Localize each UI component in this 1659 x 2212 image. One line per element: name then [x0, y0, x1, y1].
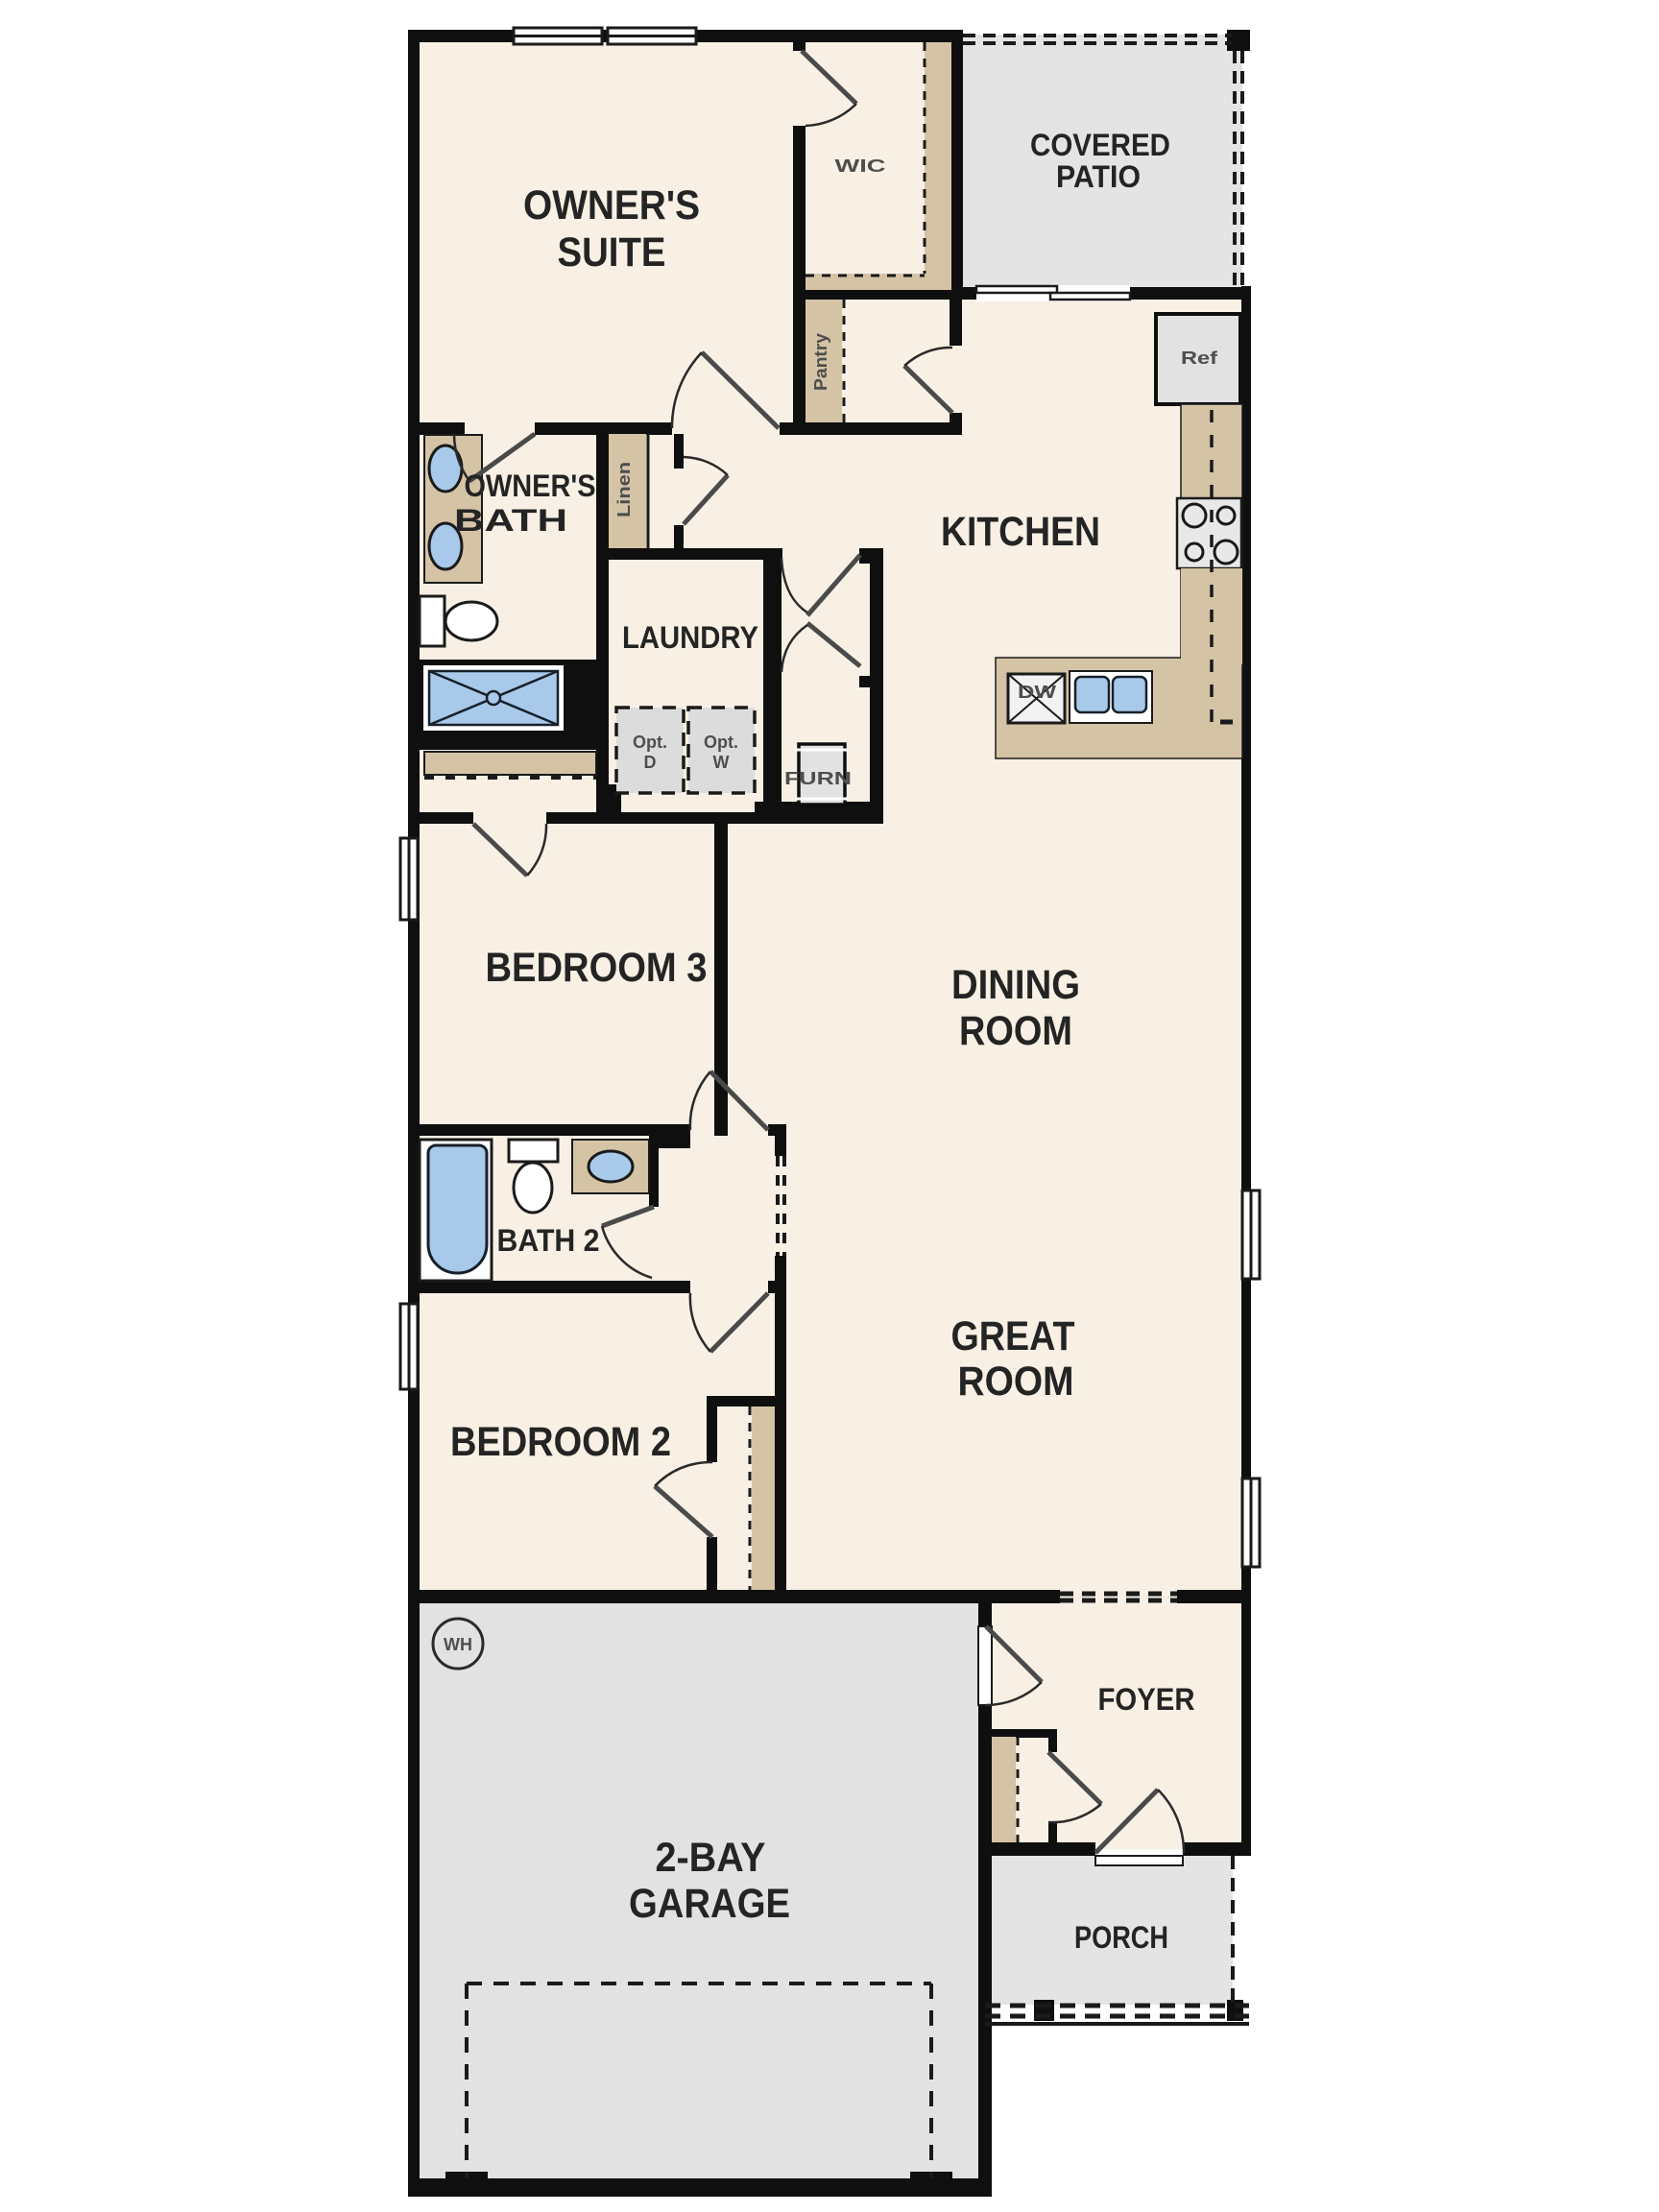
svg-text:KITCHEN: KITCHEN	[941, 509, 1100, 555]
svg-text:Ref: Ref	[1181, 349, 1218, 368]
svg-text:BATH: BATH	[454, 503, 567, 538]
svg-text:PORCH: PORCH	[1074, 1920, 1168, 1955]
svg-text:ROOM: ROOM	[958, 1358, 1074, 1405]
svg-text:Linen: Linen	[614, 462, 634, 517]
svg-text:WH: WH	[444, 1635, 472, 1654]
svg-text:DW: DW	[1018, 683, 1056, 702]
svg-text:Pantry: Pantry	[811, 333, 830, 391]
svg-text:FOYER: FOYER	[1098, 1682, 1195, 1717]
svg-text:ROOM: ROOM	[959, 1008, 1072, 1054]
svg-text:BEDROOM 3: BEDROOM 3	[486, 945, 708, 991]
svg-text:Opt.: Opt.	[704, 733, 738, 752]
svg-text:GREAT: GREAT	[951, 1313, 1075, 1359]
svg-text:W: W	[713, 753, 730, 772]
svg-text:PATIO: PATIO	[1056, 159, 1141, 194]
svg-text:LAUNDRY: LAUNDRY	[622, 620, 758, 655]
svg-text:BATH 2: BATH 2	[497, 1223, 600, 1258]
svg-text:OWNER'S: OWNER'S	[465, 469, 596, 503]
svg-text:OWNER'S: OWNER'S	[523, 182, 700, 228]
svg-text:D: D	[644, 753, 657, 772]
svg-text:FURN: FURN	[784, 769, 852, 788]
svg-text:GARAGE: GARAGE	[629, 1881, 790, 1927]
svg-text:SUITE: SUITE	[558, 229, 666, 276]
svg-text:WIC: WIC	[835, 156, 886, 176]
svg-text:BEDROOM 2: BEDROOM 2	[450, 1419, 671, 1465]
svg-text:2-BAY: 2-BAY	[656, 1835, 766, 1881]
svg-text:DINING: DINING	[951, 962, 1080, 1008]
svg-text:COVERED: COVERED	[1030, 128, 1170, 162]
svg-text:Opt.: Opt.	[633, 733, 667, 752]
